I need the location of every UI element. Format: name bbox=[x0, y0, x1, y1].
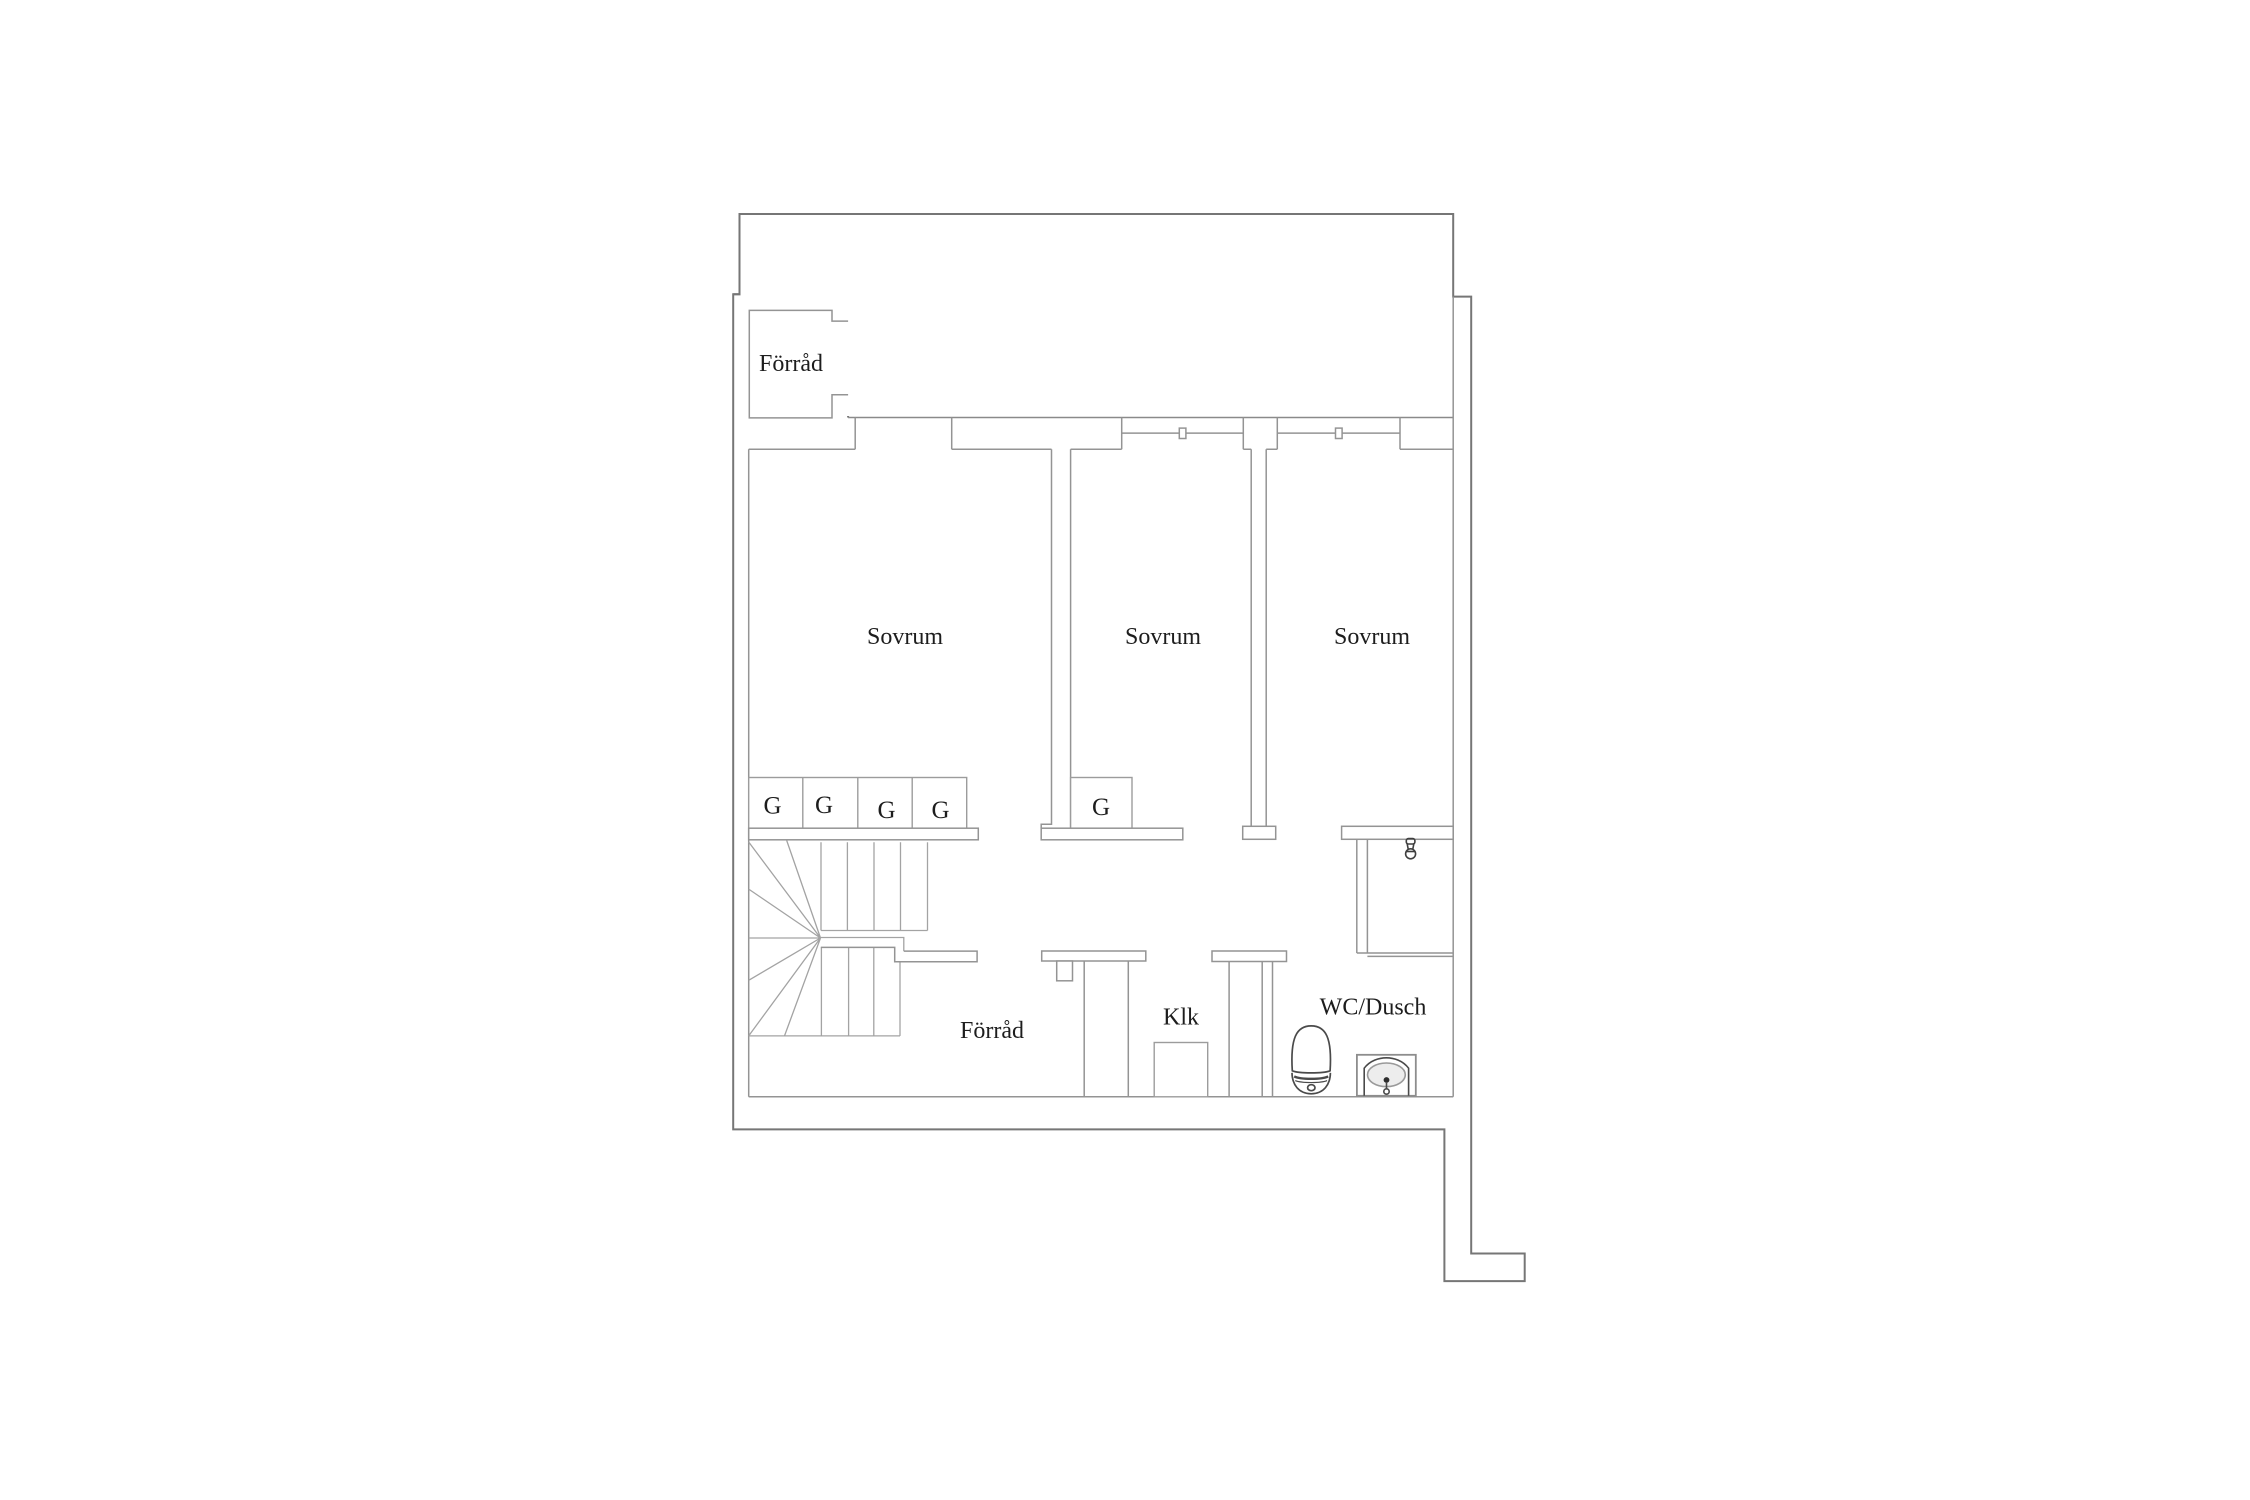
svg-text:Sovrum: Sovrum bbox=[1125, 624, 1201, 650]
svg-text:Sovrum: Sovrum bbox=[867, 624, 943, 650]
svg-text:G: G bbox=[877, 797, 895, 824]
svg-text:Sovrum: Sovrum bbox=[1334, 624, 1410, 650]
svg-text:G: G bbox=[815, 792, 833, 819]
svg-text:WC/Dusch: WC/Dusch bbox=[1320, 995, 1427, 1021]
svg-text:Klk: Klk bbox=[1163, 1005, 1199, 1031]
svg-text:Förråd: Förråd bbox=[759, 351, 823, 377]
svg-text:G: G bbox=[763, 793, 781, 820]
svg-text:G: G bbox=[931, 797, 949, 824]
svg-text:Förråd: Förråd bbox=[960, 1018, 1024, 1044]
svg-text:G: G bbox=[1092, 794, 1110, 821]
